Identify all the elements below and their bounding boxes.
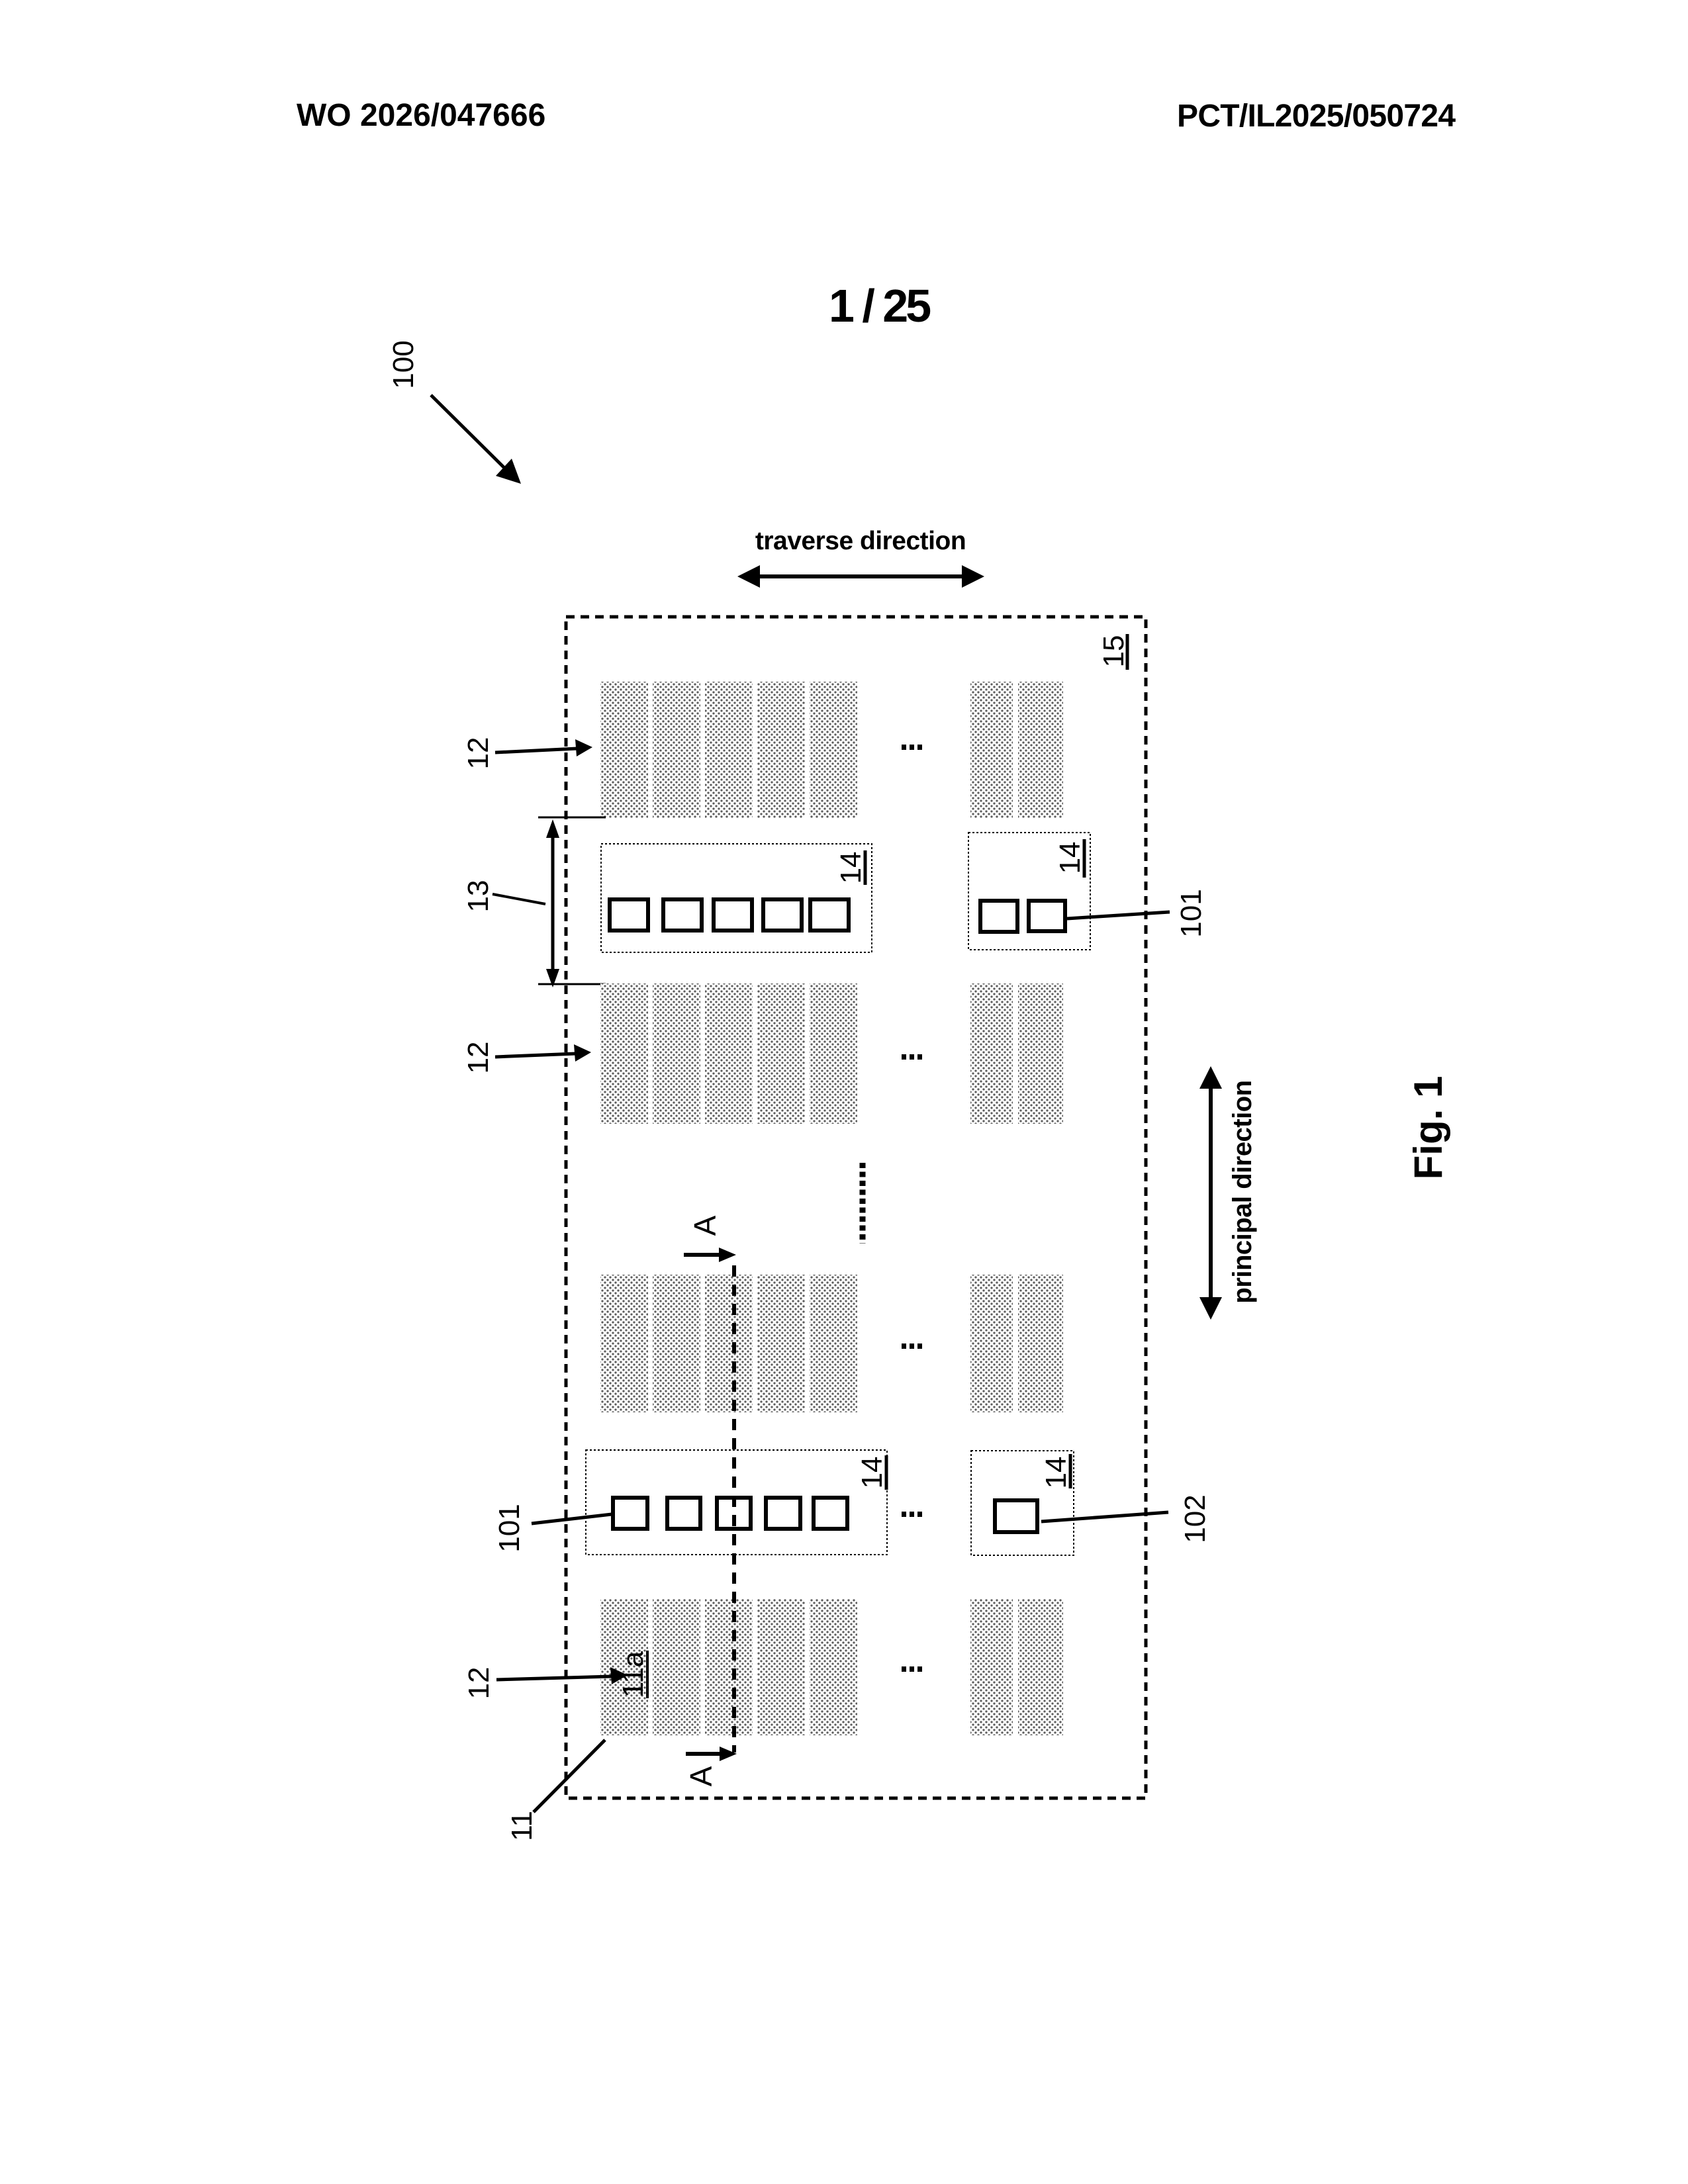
svg-text:11: 11 bbox=[506, 1811, 538, 1841]
svg-text:13: 13 bbox=[462, 880, 494, 913]
svg-text:principal direction: principal direction bbox=[1228, 1080, 1257, 1303]
svg-text:A: A bbox=[684, 1766, 718, 1786]
svg-text:12: 12 bbox=[463, 1667, 495, 1700]
svg-text:traverse direction: traverse direction bbox=[755, 527, 966, 555]
svg-text:14: 14 bbox=[1040, 1457, 1072, 1489]
svg-text:12: 12 bbox=[462, 1042, 494, 1074]
svg-text:101: 101 bbox=[493, 1504, 526, 1552]
svg-text:101: 101 bbox=[1175, 889, 1207, 937]
svg-text:PCT/IL2025/050724: PCT/IL2025/050724 bbox=[1177, 99, 1456, 134]
svg-text:15: 15 bbox=[1098, 635, 1130, 668]
svg-text:14: 14 bbox=[1054, 842, 1086, 874]
svg-text:102: 102 bbox=[1179, 1494, 1211, 1543]
svg-text:12: 12 bbox=[462, 737, 494, 770]
svg-text:100: 100 bbox=[387, 340, 420, 388]
svg-text:A: A bbox=[688, 1215, 722, 1236]
svg-text:WO 2026/047666: WO 2026/047666 bbox=[297, 98, 545, 133]
svg-text:Fig. 1: Fig. 1 bbox=[1406, 1076, 1450, 1180]
svg-text:1 / 25: 1 / 25 bbox=[829, 280, 930, 332]
svg-text:14: 14 bbox=[856, 1457, 888, 1489]
svg-text:14: 14 bbox=[835, 852, 867, 884]
